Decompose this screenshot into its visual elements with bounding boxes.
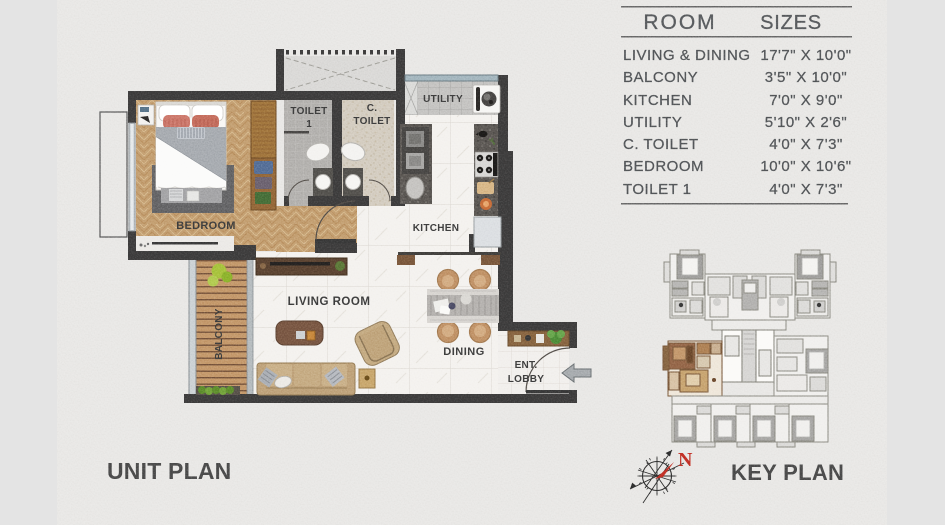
svg-text:UNIT PLAN: UNIT PLAN (107, 458, 231, 484)
svg-text:4'0" X 7'3": 4'0" X 7'3" (769, 136, 843, 153)
svg-text:10'0" X 10'6": 10'0" X 10'6" (760, 158, 851, 175)
svg-text:1: 1 (306, 119, 312, 130)
svg-text:C. TOILET: C. TOILET (623, 136, 699, 153)
svg-text:BALCONY: BALCONY (623, 69, 698, 86)
svg-text:TOILET: TOILET (353, 116, 390, 127)
svg-text:BEDROOM: BEDROOM (623, 158, 704, 175)
svg-text:TOILET: TOILET (290, 106, 327, 117)
svg-text:5'10" X 2'6": 5'10" X 2'6" (765, 114, 847, 131)
svg-text:ROOM: ROOM (643, 11, 716, 34)
svg-text:7'0" X 9'0": 7'0" X 9'0" (769, 92, 843, 109)
svg-text:DINING: DINING (443, 346, 485, 358)
svg-text:TOILET 1: TOILET 1 (623, 181, 691, 198)
svg-text:LIVING ROOM: LIVING ROOM (288, 296, 371, 308)
svg-text:BALCONY: BALCONY (214, 308, 225, 360)
svg-text:KITCHEN: KITCHEN (413, 223, 460, 234)
svg-text:17'7" X 10'0": 17'7" X 10'0" (760, 47, 851, 64)
svg-text:BEDROOM: BEDROOM (176, 220, 236, 232)
svg-text:3'5" X 10'0": 3'5" X 10'0" (765, 69, 847, 86)
svg-text:UTILITY: UTILITY (423, 94, 463, 105)
svg-text:LIVING & DINING: LIVING & DINING (623, 47, 751, 64)
svg-text:4'0" X 7'3": 4'0" X 7'3" (769, 181, 843, 198)
svg-text:KITCHEN: KITCHEN (623, 92, 692, 109)
svg-text:N: N (678, 449, 693, 471)
svg-text:LOBBY: LOBBY (508, 374, 545, 385)
svg-text:ENT.: ENT. (515, 360, 538, 371)
svg-text:UTILITY: UTILITY (623, 114, 682, 131)
svg-text:KEY PLAN: KEY PLAN (731, 460, 844, 485)
svg-text:SIZES: SIZES (760, 12, 822, 34)
svg-text:C.: C. (367, 103, 378, 114)
